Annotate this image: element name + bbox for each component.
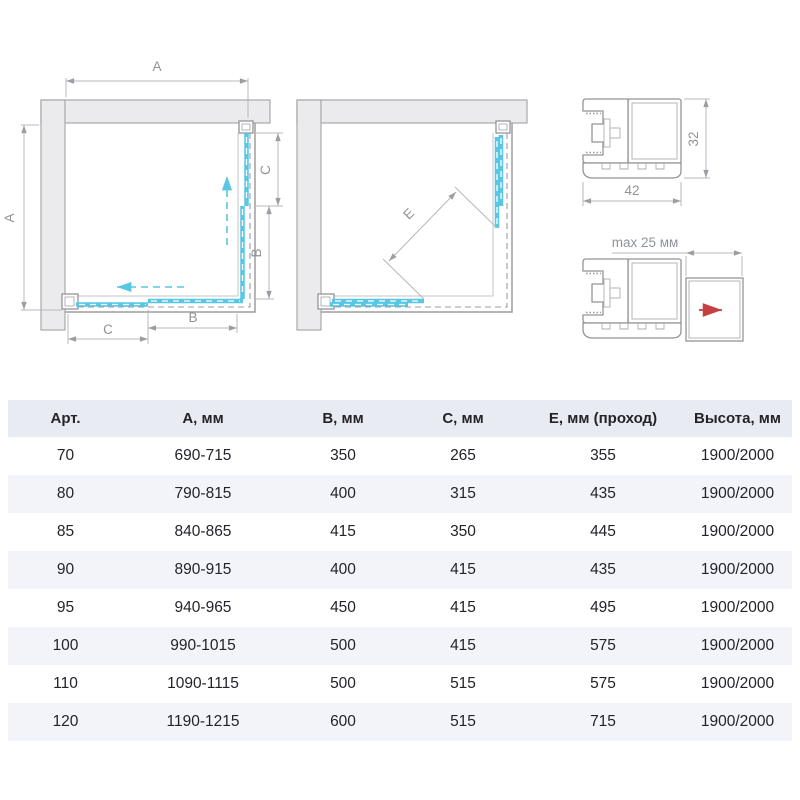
dim-label-42: 42 — [624, 183, 639, 198]
table-body: 70690-7153502653551900/200080790-8154003… — [8, 437, 792, 741]
dim-label-e: E — [400, 205, 417, 222]
table-cell: 500 — [283, 665, 403, 703]
wall-top — [297, 100, 527, 123]
dim-label-a-top: A — [152, 59, 161, 74]
table-cell: 415 — [403, 627, 523, 665]
table-cell: 1900/2000 — [683, 437, 792, 475]
dimension-c-right: C — [255, 133, 283, 206]
table-row: 95940-9654504154951900/2000 — [8, 589, 792, 627]
table-cell: 70 — [8, 437, 123, 475]
table-row: 85840-8654153504451900/2000 — [8, 513, 792, 551]
table-cell: 95 — [8, 589, 123, 627]
glass-panels-closed — [76, 133, 247, 305]
table-cell: 1900/2000 — [683, 589, 792, 627]
dimension-c-bottom: C — [68, 310, 148, 344]
table-cell: 515 — [403, 703, 523, 741]
dim-label-a-left: A — [2, 213, 17, 222]
table-cell: 445 — [523, 513, 683, 551]
table-row: 90890-9154004154351900/2000 — [8, 551, 792, 589]
dim-label-b-bottom: B — [188, 310, 197, 325]
table-cell: 600 — [283, 703, 403, 741]
table-header-c: С, мм — [403, 400, 523, 437]
table-cell: 90 — [8, 551, 123, 589]
enclosure-rail-dashed — [330, 133, 507, 307]
table-cell: 355 — [523, 437, 683, 475]
dim-label-c-bottom: C — [103, 322, 113, 337]
table-cell: 515 — [403, 665, 523, 703]
table-cell: 415 — [403, 551, 523, 589]
table-cell: 85 — [8, 513, 123, 551]
table-header-row: Арт. А, мм В, мм С, мм Е, мм (проход) Вы… — [8, 400, 792, 437]
table-cell: 790-815 — [123, 475, 283, 513]
table-header-a: А, мм — [123, 400, 283, 437]
table-cell: 315 — [403, 475, 523, 513]
table-cell: 435 — [523, 475, 683, 513]
table-cell: 840-865 — [123, 513, 283, 551]
table-cell: 120 — [8, 703, 123, 741]
table-cell: 690-715 — [123, 437, 283, 475]
profile-cross-section: 42 32 — [583, 99, 710, 206]
dim-label-c-right: C — [258, 165, 273, 175]
enclosure-rail-dashed — [74, 133, 250, 307]
table-cell: 265 — [403, 437, 523, 475]
enclosure-rail-inner — [78, 133, 238, 296]
diagram-closed-plan: A A C B C B — [2, 59, 283, 344]
bracket-top-right — [239, 121, 253, 133]
table-row: 80790-8154003154351900/2000 — [8, 475, 792, 513]
table-cell: 890-915 — [123, 551, 283, 589]
table-cell: 415 — [403, 589, 523, 627]
table-cell: 80 — [8, 475, 123, 513]
table-cell: 500 — [283, 627, 403, 665]
diagram-open-plan: E — [297, 100, 527, 330]
spec-table: Арт. А, мм В, мм С, мм Е, мм (проход) Вы… — [8, 400, 792, 741]
table-header-b: В, мм — [283, 400, 403, 437]
table-cell: 350 — [283, 437, 403, 475]
table-cell: 400 — [283, 551, 403, 589]
table-cell: 990-1015 — [123, 627, 283, 665]
table-cell: 1900/2000 — [683, 627, 792, 665]
dimension-e-passage: E — [383, 187, 497, 299]
bracket-bottom-left — [62, 294, 78, 309]
table-cell: 1900/2000 — [683, 665, 792, 703]
table-cell: 575 — [523, 665, 683, 703]
table-row: 1201190-12156005157151900/2000 — [8, 703, 792, 741]
table-cell: 940-965 — [123, 589, 283, 627]
table-cell: 1900/2000 — [683, 475, 792, 513]
enclosure-frame — [321, 123, 512, 312]
table-cell: 110 — [8, 665, 123, 703]
dimension-42: 42 — [583, 182, 681, 206]
table-cell: 715 — [523, 703, 683, 741]
table-cell: 1900/2000 — [683, 513, 792, 551]
table-header-height: Высота, мм — [683, 400, 792, 437]
table-row: 1101090-11155005155751900/2000 — [8, 665, 792, 703]
table-cell: 450 — [283, 589, 403, 627]
dimension-b-right: B — [249, 206, 274, 299]
table-cell: 1900/2000 — [683, 551, 792, 589]
table-cell: 575 — [523, 627, 683, 665]
table-cell: 495 — [523, 589, 683, 627]
table-cell: 350 — [403, 513, 523, 551]
table-cell: 100 — [8, 627, 123, 665]
bracket-top-right — [496, 121, 510, 133]
dim-label-32: 32 — [686, 131, 701, 146]
table-cell: 1900/2000 — [683, 703, 792, 741]
table-cell: 415 — [283, 513, 403, 551]
table-row: 100990-10155004155751900/2000 — [8, 627, 792, 665]
wall-top — [41, 100, 270, 123]
table-cell: 1190-1215 — [123, 703, 283, 741]
technical-drawings: A A C B C B — [0, 0, 800, 396]
profile-extension-detail: max 25 мм — [583, 235, 743, 341]
table-header-e: Е, мм (проход) — [523, 400, 683, 437]
table-cell: 435 — [523, 551, 683, 589]
glass-panels-open — [330, 135, 501, 305]
table-cell: 400 — [283, 475, 403, 513]
table-header-art: Арт. — [8, 400, 123, 437]
dimension-32: 32 — [684, 99, 710, 178]
dim-label-max-25: max 25 мм — [612, 235, 679, 250]
dim-label-b-right: B — [249, 248, 264, 257]
table-cell: 1090-1115 — [123, 665, 283, 703]
dimension-b-bottom: B — [148, 310, 237, 333]
table-row: 70690-7153502653551900/2000 — [8, 437, 792, 475]
